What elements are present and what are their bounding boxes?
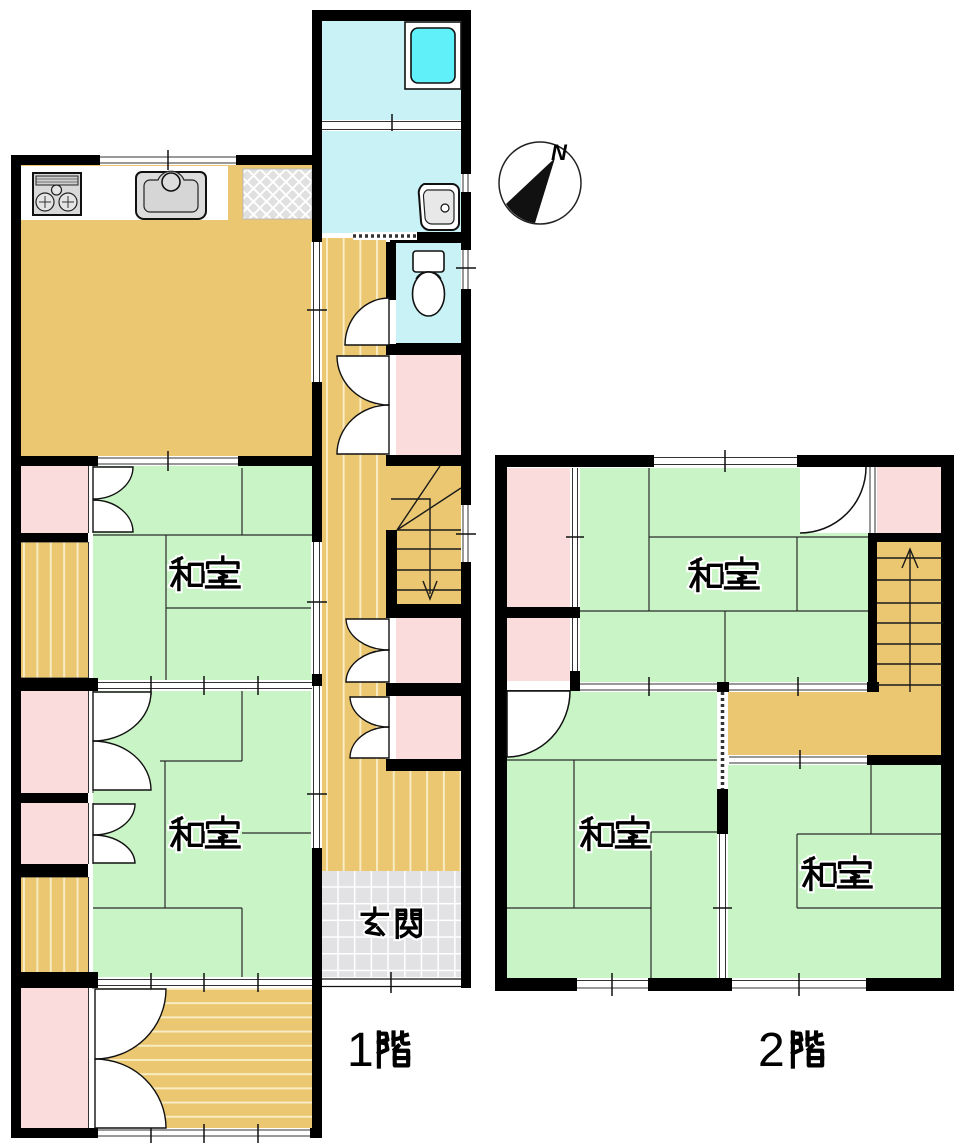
svg-text:N: N <box>551 140 568 165</box>
svg-text:1: 1 <box>347 1024 374 1077</box>
svg-text:2: 2 <box>758 1024 785 1077</box>
